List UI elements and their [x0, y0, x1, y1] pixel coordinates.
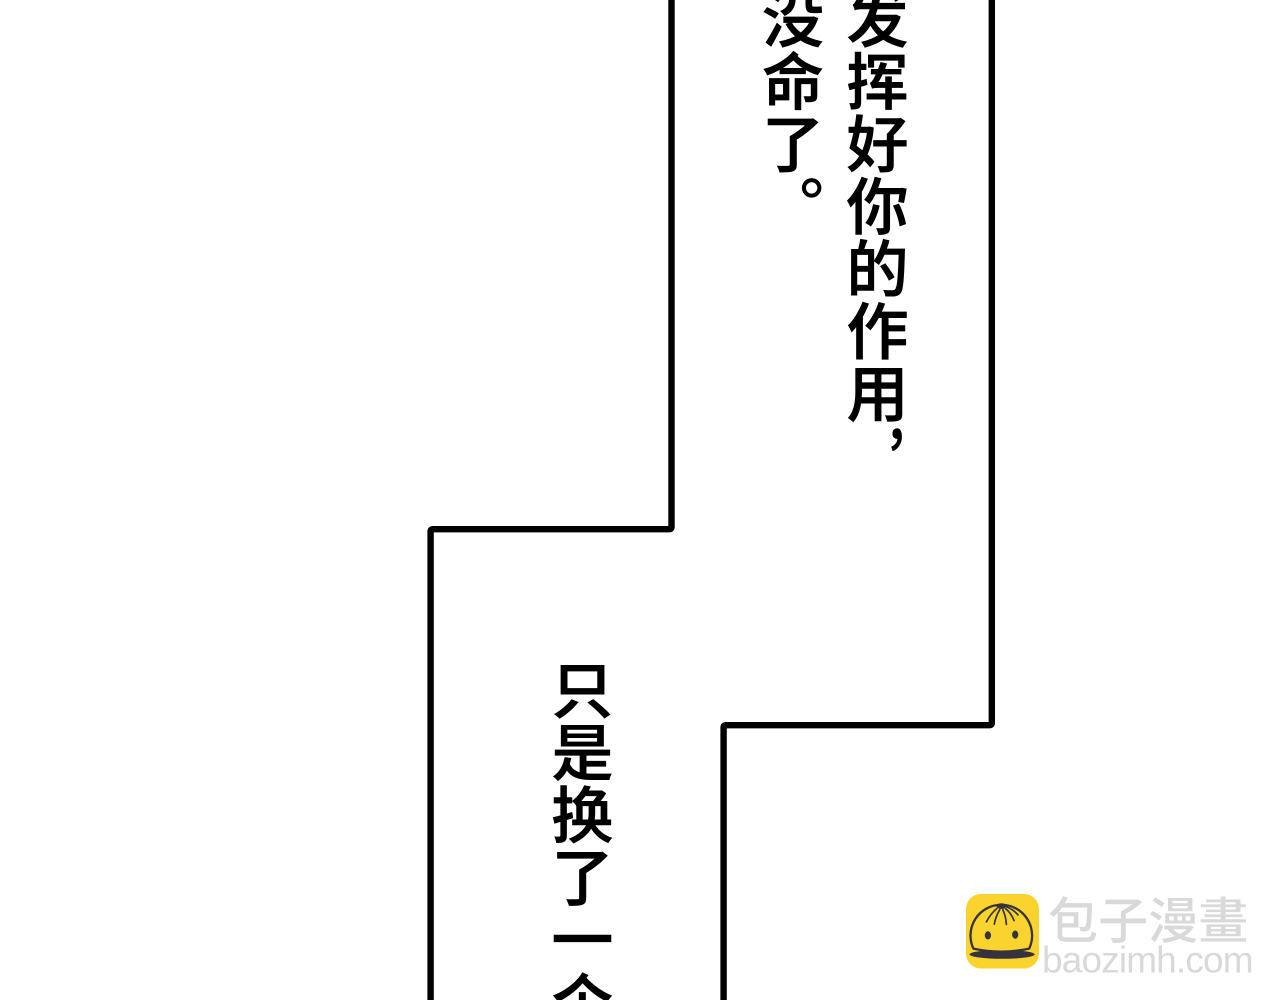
- svg-text:baozimh.com: baozimh.com: [1042, 940, 1253, 981]
